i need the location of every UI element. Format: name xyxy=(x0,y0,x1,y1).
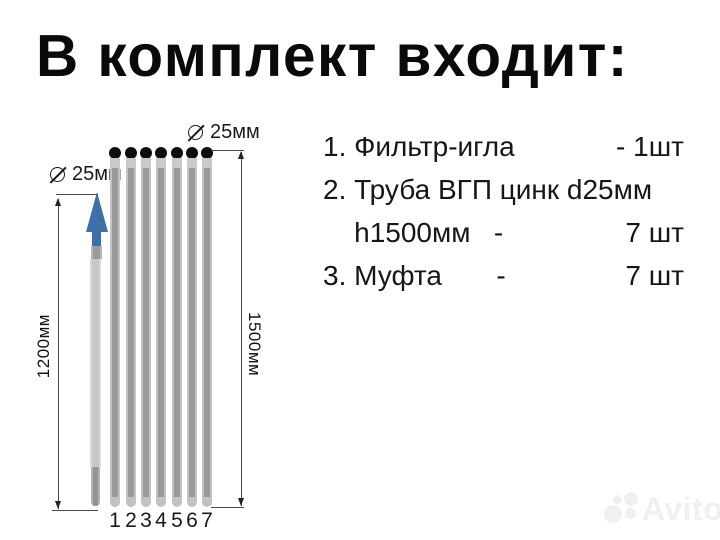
dimension-extension-line xyxy=(211,507,244,508)
dimension-line xyxy=(241,152,242,506)
needle-height-label: 1200мм xyxy=(34,314,54,378)
needle-connector xyxy=(91,246,102,259)
list-item-qty: - 1шт xyxy=(616,131,684,163)
pipe-1 xyxy=(110,147,120,507)
needle-tip xyxy=(91,467,100,506)
watermark-text: Avito xyxy=(642,491,720,528)
avito-logo-icon xyxy=(604,492,638,528)
list-item-qty: 7 шт xyxy=(625,260,684,292)
pipe-number: 2 xyxy=(125,509,137,533)
pipe-diameter-callout: 25мм xyxy=(188,121,260,144)
pipe-cap xyxy=(202,158,212,168)
kit-diagram: 25мм 25мм 1200мм 1 2 3 xyxy=(0,0,320,540)
product-listing-image: В комплект входит: 25мм 25мм 1200мм xyxy=(0,0,720,540)
pipe-number: 7 xyxy=(201,509,213,533)
pipe-cap xyxy=(172,158,182,168)
pipe-number: 1 xyxy=(109,509,121,533)
pipe-body xyxy=(172,168,182,497)
pipe-body xyxy=(187,168,197,497)
list-item: h1500мм - 7 шт xyxy=(323,217,684,260)
pipe-cap xyxy=(110,158,120,168)
pipe-body xyxy=(110,168,120,497)
pipe-5 xyxy=(172,147,182,507)
pipe-number: 5 xyxy=(171,509,183,533)
pipe-6 xyxy=(187,147,197,507)
pipe-bottom-cap xyxy=(156,497,166,507)
pipe-bottom-cap xyxy=(110,497,120,507)
pipe-bottom-cap xyxy=(126,497,136,507)
avito-watermark: Avito xyxy=(604,491,720,528)
pipe-cap xyxy=(141,158,151,168)
pipe-bottom-cap xyxy=(141,497,151,507)
pipe-2 xyxy=(126,147,136,507)
pipe-3 xyxy=(141,147,151,507)
pipe-bottom-cap xyxy=(187,497,197,507)
pipe-body xyxy=(141,168,151,497)
dimension-extension-line xyxy=(56,194,98,195)
list-item: 2. Труба ВГП цинк d25мм xyxy=(323,174,684,217)
needle-rod xyxy=(90,259,101,467)
pipe-bottom-cap xyxy=(172,497,182,507)
arrow-up-icon xyxy=(238,151,244,159)
pipe-4 xyxy=(156,147,166,507)
list-item: 1. Фильтр-игла - 1шт xyxy=(323,131,684,174)
list-item: 3. Муфта - 7 шт xyxy=(323,260,684,303)
pipe-body xyxy=(202,168,212,497)
pipe-7 xyxy=(202,147,212,507)
dimension-line xyxy=(58,199,59,509)
list-item-name: 1. Фильтр-игла xyxy=(323,131,515,163)
diameter-icon xyxy=(50,167,65,182)
pipe-body xyxy=(156,168,166,497)
list-item-name: h1500мм - xyxy=(323,217,503,249)
pipe-cap xyxy=(156,158,166,168)
pipe-height-label: 1500мм xyxy=(244,312,264,376)
list-item-name: 3. Муфта - xyxy=(323,260,506,292)
pipe-number: 4 xyxy=(155,509,167,533)
arrow-up-icon xyxy=(55,198,61,206)
kit-contents-list: 1. Фильтр-игла - 1шт 2. Труба ВГП цинк d… xyxy=(323,131,684,303)
pipe-bottom-cap xyxy=(202,497,212,507)
list-item-qty: 7 шт xyxy=(625,217,684,249)
list-item-name: 2. Труба ВГП цинк d25мм xyxy=(323,174,652,206)
dimension-extension-line xyxy=(52,510,98,511)
pipe-body xyxy=(126,168,136,497)
up-arrow-shaft xyxy=(92,231,101,246)
pipe-number: 6 xyxy=(186,509,198,533)
diameter-icon xyxy=(188,125,203,140)
arrow-down-icon xyxy=(55,501,61,509)
up-arrow-icon xyxy=(86,192,108,232)
pipe-diameter-value: 25мм xyxy=(210,121,260,144)
pipe-number: 3 xyxy=(140,509,152,533)
pipe-cap xyxy=(126,158,136,168)
pipe-cap xyxy=(187,158,197,168)
arrow-down-icon xyxy=(238,498,244,506)
